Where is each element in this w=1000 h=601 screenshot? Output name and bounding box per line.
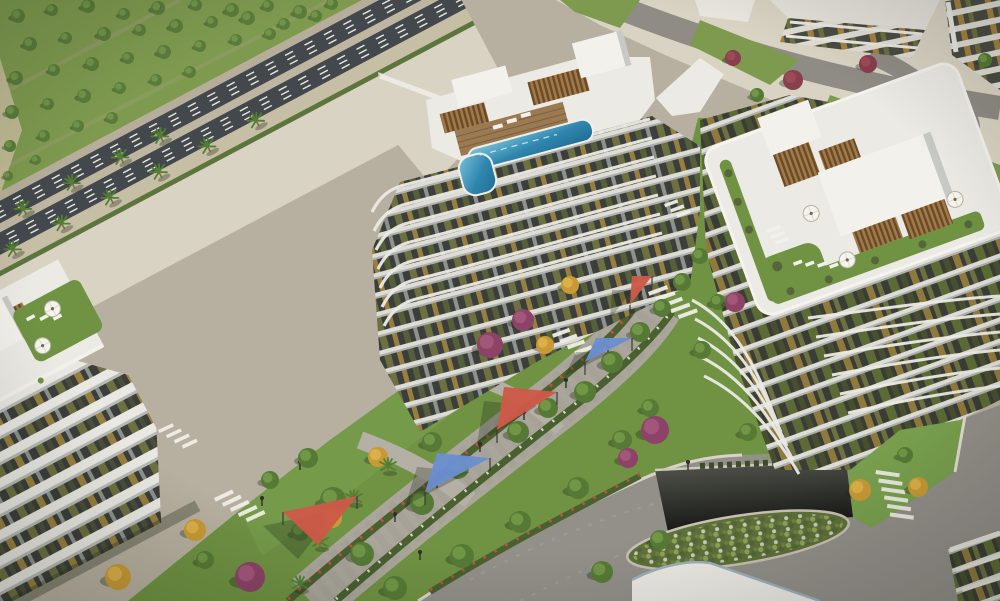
vignette bbox=[0, 0, 1000, 601]
aerial-render-image bbox=[0, 0, 1000, 601]
